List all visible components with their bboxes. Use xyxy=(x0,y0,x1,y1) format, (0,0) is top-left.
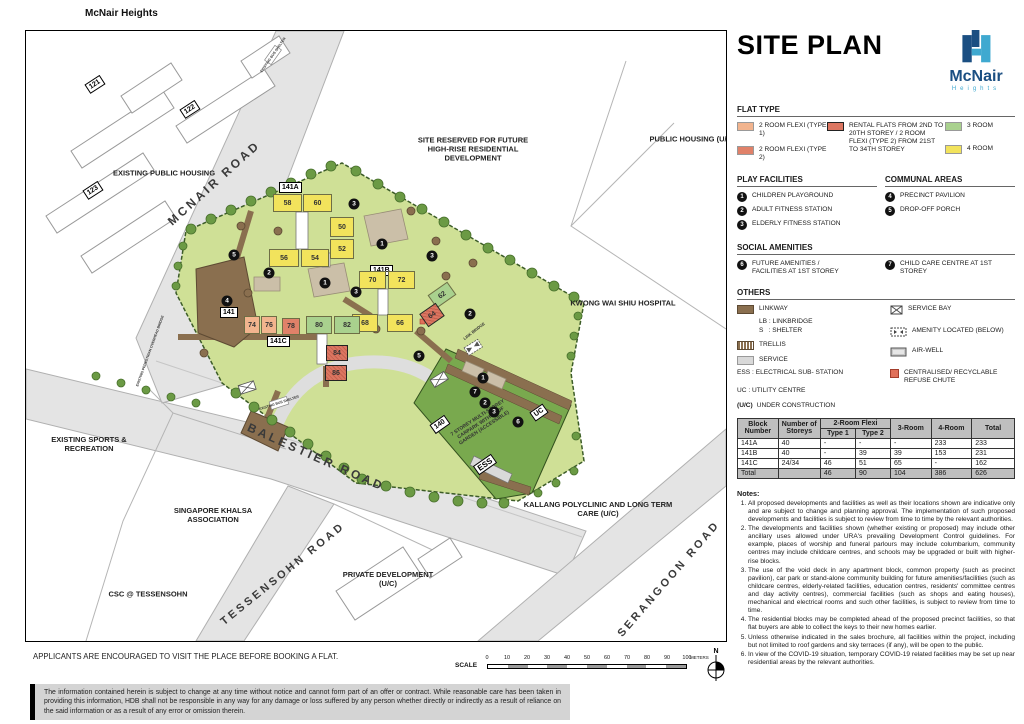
col-storeys: Number of Storeys xyxy=(778,418,820,438)
cell: 39 xyxy=(891,448,932,458)
legend-2room-type1: 2 ROOM FLEXI (TYPE 1) xyxy=(759,122,827,138)
unit-56: 56 xyxy=(269,249,299,267)
label-existing-public-housing: EXISTING PUBLIC HOUSING xyxy=(109,169,219,178)
legend-uc-prefix: (U/C) xyxy=(737,402,753,410)
scale-tick: 20 xyxy=(524,655,530,661)
cell: 141B xyxy=(738,448,779,458)
section-play-facilities: PLAY FACILITIES xyxy=(737,175,877,187)
cell: 24/34 xyxy=(778,458,820,468)
scale-bar: SCALE 0 10 20 30 40 50 60 70 80 90 100 M… xyxy=(487,657,687,671)
unit-mix-table: Block Number Number of Storeys 2-Room Fl… xyxy=(737,418,1015,479)
col-2room: 2-Room Flexi xyxy=(820,418,890,428)
marker-elderly-fitness: 3 xyxy=(427,251,438,262)
scale-tick: 0 xyxy=(485,655,488,661)
scale-tick: 30 xyxy=(544,655,550,661)
map-graphics xyxy=(26,31,726,641)
air-well-icon xyxy=(890,347,907,357)
unit-60: 60 xyxy=(303,194,332,212)
cell: 162 xyxy=(972,458,1015,468)
label-private-development: PRIVATE DEVELOPMENT (U/C) xyxy=(333,570,443,588)
legend-precinct-pavilion: PRECINCT PAVILION xyxy=(900,192,965,200)
communal-areas: COMMUNAL AREAS 4PRECINCT PAVILION 5DROP-… xyxy=(885,166,1015,234)
scale-tick: 50 xyxy=(584,655,590,661)
north-arrow: N xyxy=(704,648,728,686)
legend-rental: RENTAL FLATS FROM 2ND TO 20TH STOREY / 2… xyxy=(849,122,945,154)
scale-tick: 40 xyxy=(564,655,570,661)
col-type2: Type 2 xyxy=(855,428,890,438)
legend-trellis: TRELLIS xyxy=(759,341,786,349)
table-row-141A: 141A40---233233 xyxy=(738,438,1015,448)
marker-drop-off-porch: 5 xyxy=(229,250,240,261)
logo-name: McNair xyxy=(937,69,1015,85)
legend-refuse-chute: CENTRALISED/ RECYCLABLE REFUSE CHUTE xyxy=(904,369,1015,385)
marker-playground: 1 xyxy=(377,239,388,250)
section-others: OTHERS xyxy=(737,288,1015,300)
cell: 153 xyxy=(931,448,972,458)
cell: 233 xyxy=(931,438,972,448)
unit-58: 58 xyxy=(273,194,302,212)
scale-tick: 80 xyxy=(644,655,650,661)
note-1: All proposed developments and facilities… xyxy=(748,500,1015,524)
flat-type-legend: 2 ROOM FLEXI (TYPE 1) 2 ROOM FLEXI (TYPE… xyxy=(737,122,1015,166)
legend-2room-type2: 2 ROOM FLEXI (TYPE 2) xyxy=(759,146,827,162)
cell: - xyxy=(891,438,932,448)
cell: - xyxy=(820,438,855,448)
unit-86: 86 xyxy=(325,365,347,381)
unit-74: 74 xyxy=(244,316,260,334)
col-type1: Type 1 xyxy=(820,428,855,438)
cell xyxy=(778,468,820,478)
section-flat-type: FLAT TYPE xyxy=(737,105,1015,117)
cell: - xyxy=(931,458,972,468)
marker-adult-fitness: 2 xyxy=(264,268,275,279)
table-row-141C: 141C24/34465165-162 xyxy=(738,458,1015,468)
cell: Total xyxy=(738,468,779,478)
legend-4room: 4 ROOM xyxy=(967,145,993,153)
legend-adult-fitness: ADULT FITNESS STATION xyxy=(752,206,832,214)
swatch-linkway xyxy=(737,305,754,314)
logo-subtitle: Heights xyxy=(937,86,1015,92)
label-existing-sports: EXISTING SPORTS & RECREATION xyxy=(34,435,144,453)
legend-future-amenities: FUTURE AMENITIES / FACILITIES AT 1ST STO… xyxy=(752,260,852,276)
label-kwong-wai-shiu: KWONG WAI SHIU HOSPITAL xyxy=(568,299,678,308)
others-legend: LINKWAY LB : LINKBRIDGES : SHELTER TRELL… xyxy=(737,305,1015,413)
unit-72: 72 xyxy=(388,271,415,289)
notes-list: All proposed developments and facilities… xyxy=(737,500,1015,667)
cell: 104 xyxy=(891,468,932,478)
col-4room: 4-Room xyxy=(931,418,972,438)
unit-80: 80 xyxy=(306,316,332,334)
scale-tick: 70 xyxy=(624,655,630,661)
legend-under-construction: UNDER CONSTRUCTION xyxy=(757,402,835,410)
note-6: In view of the COVID-19 situation, tempo… xyxy=(748,651,1015,667)
marker-future-amenities: 6 xyxy=(513,417,524,428)
north-label: N xyxy=(704,648,728,655)
cell: 65 xyxy=(891,458,932,468)
unit-84: 84 xyxy=(326,345,348,361)
marker-elderly-fitness: 3 xyxy=(489,407,500,418)
scale-bar-segments xyxy=(487,664,687,669)
marker-5-icon: 5 xyxy=(885,206,895,216)
cell: 51 xyxy=(855,458,890,468)
cell: 141A xyxy=(738,438,779,448)
marker-4-icon: 4 xyxy=(885,192,895,202)
applicants-note: APPLICANTS ARE ENCOURAGED TO VISIT THE P… xyxy=(33,652,338,661)
cell: 90 xyxy=(855,468,890,478)
marker-elderly-fitness: 3 xyxy=(351,287,362,298)
cell: 141C xyxy=(738,458,779,468)
legend-drop-off: DROP-OFF PORCH xyxy=(900,206,960,214)
swatch-service xyxy=(737,356,754,365)
label-kallang-polyclinic: KALLANG POLYCLINIC AND LONG TERM CARE (U… xyxy=(518,500,678,518)
marker-playground: 1 xyxy=(478,373,489,384)
note-2: The developments and facilities shown (w… xyxy=(748,525,1015,566)
unit-82: 82 xyxy=(334,316,360,334)
legend-linkbridge: LB : LINKBRIDGE xyxy=(759,318,813,325)
table-row-total: Total4690104386626 xyxy=(738,468,1015,478)
badge-141: 141 xyxy=(220,307,238,318)
note-5: Unless otherwise indicated in the sales … xyxy=(748,634,1015,650)
scale-tick: 60 xyxy=(604,655,610,661)
legend-amenity-below: AMENITY LOCATED (BELOW) xyxy=(912,327,1004,335)
label-khalsa: SINGAPORE KHALSA ASSOCIATION xyxy=(148,506,278,524)
col-block: Block Number xyxy=(738,418,779,438)
disclaimer: The information contained herein is subj… xyxy=(30,684,570,720)
marker-adult-fitness: 2 xyxy=(480,398,491,409)
site-map: EXISTING PUBLIC HOUSING SITE RESERVED FO… xyxy=(25,30,727,642)
legend-3room: 3 ROOM xyxy=(967,122,993,130)
swatch-2room-type1 xyxy=(737,122,754,131)
scale-label: SCALE xyxy=(455,662,477,669)
swatch-4room xyxy=(945,145,962,154)
social-amenities: 6FUTURE AMENITIES / FACILITIES AT 1ST ST… xyxy=(737,260,1015,280)
legend-service: SERVICE xyxy=(759,356,788,364)
col-total: Total xyxy=(972,418,1015,438)
legend-uc: UC : UTILITY CENTRE xyxy=(737,387,805,394)
scale-tick: 10 xyxy=(504,655,510,661)
scale-tick: 90 xyxy=(664,655,670,661)
swatch-2room-type2 xyxy=(737,146,754,155)
legend-ess: ESS : ELECTRICAL SUB- STATION xyxy=(737,369,843,376)
legend-shelter: S : SHELTER xyxy=(759,327,802,334)
marker-1-icon: 1 xyxy=(737,192,747,202)
marker-7-icon: 7 xyxy=(885,260,895,270)
unit-76: 76 xyxy=(261,316,277,334)
badge-141C: 141C xyxy=(267,336,290,347)
legend-childcare: CHILD CARE CENTRE AT 1ST STOREY xyxy=(900,260,1015,276)
marker-6-icon: 6 xyxy=(737,260,747,270)
swatch-rental xyxy=(827,122,844,131)
marker-precinct-pavilion: 4 xyxy=(222,296,233,307)
legend-service-bay: SERVICE BAY xyxy=(908,305,951,313)
swatch-trellis xyxy=(737,341,754,350)
label-public-housing-uc: PUBLIC HOUSING (U/C) xyxy=(642,135,727,144)
play-facilities: PLAY FACILITIES 1CHILDREN PLAYGROUND 2AD… xyxy=(737,166,877,234)
legend-linkway: LINKWAY xyxy=(759,305,788,313)
badge-141A: 141A xyxy=(279,182,302,193)
cell: 40 xyxy=(778,448,820,458)
cell: 39 xyxy=(855,448,890,458)
unit-54: 54 xyxy=(301,249,329,267)
unit-50: 50 xyxy=(330,217,354,237)
marker-drop-off-porch: 5 xyxy=(414,351,425,362)
label-csc-tessensohn: CSC @ TESSENSOHN xyxy=(73,590,223,599)
marker-2-icon: 2 xyxy=(737,206,747,216)
legend-playground: CHILDREN PLAYGROUND xyxy=(752,192,833,200)
refuse-chute-icon xyxy=(890,369,899,378)
legend-elderly-fitness: ELDERLY FITNESS STATION xyxy=(752,220,841,228)
cell: 386 xyxy=(931,468,972,478)
amenity-below-icon xyxy=(890,327,907,337)
marker-elderly-fitness: 3 xyxy=(349,199,360,210)
map-title: McNair Heights xyxy=(85,8,158,19)
label-site-reserved: SITE RESERVED FOR FUTURE HIGH-RISE RESID… xyxy=(413,136,533,163)
cell: - xyxy=(820,448,855,458)
site-plan-page: McNair Heights xyxy=(0,0,1024,724)
marker-adult-fitness: 2 xyxy=(465,309,476,320)
legend-panel: SITE PLAN McNair Heights FLAT TYPE 2 ROO… xyxy=(737,30,1015,668)
marker-childcare: 7 xyxy=(470,387,481,398)
service-bay-icon xyxy=(890,305,903,315)
notes-title: Notes: xyxy=(737,489,1015,498)
north-arrow-icon xyxy=(705,655,727,681)
swatch-3room xyxy=(945,122,962,131)
marker-3-icon: 3 xyxy=(737,220,747,230)
unit-66: 66 xyxy=(387,314,413,332)
unit-70: 70 xyxy=(359,271,386,289)
cell: - xyxy=(855,438,890,448)
cell: 46 xyxy=(820,468,855,478)
section-communal-areas: COMMUNAL AREAS xyxy=(885,175,1015,187)
cell: 626 xyxy=(972,468,1015,478)
section-social-amenities: SOCIAL AMENITIES xyxy=(737,243,1015,255)
cell: 231 xyxy=(972,448,1015,458)
unit-78: 78 xyxy=(282,318,300,335)
marker-playground: 1 xyxy=(320,278,331,289)
cell: 233 xyxy=(972,438,1015,448)
note-3: The use of the void deck in any apartmen… xyxy=(748,567,1015,616)
table-row-141B: 141B40-3939153231 xyxy=(738,448,1015,458)
col-3room: 3-Room xyxy=(891,418,932,438)
note-4: The residential blocks may be completed … xyxy=(748,616,1015,632)
mcnair-logo-icon xyxy=(956,30,996,64)
legend-air-well: AIR-WELL xyxy=(912,347,943,355)
mcnair-logo: McNair Heights xyxy=(937,30,1015,92)
unit-52: 52 xyxy=(330,239,354,259)
cell: 40 xyxy=(778,438,820,448)
cell: 46 xyxy=(820,458,855,468)
